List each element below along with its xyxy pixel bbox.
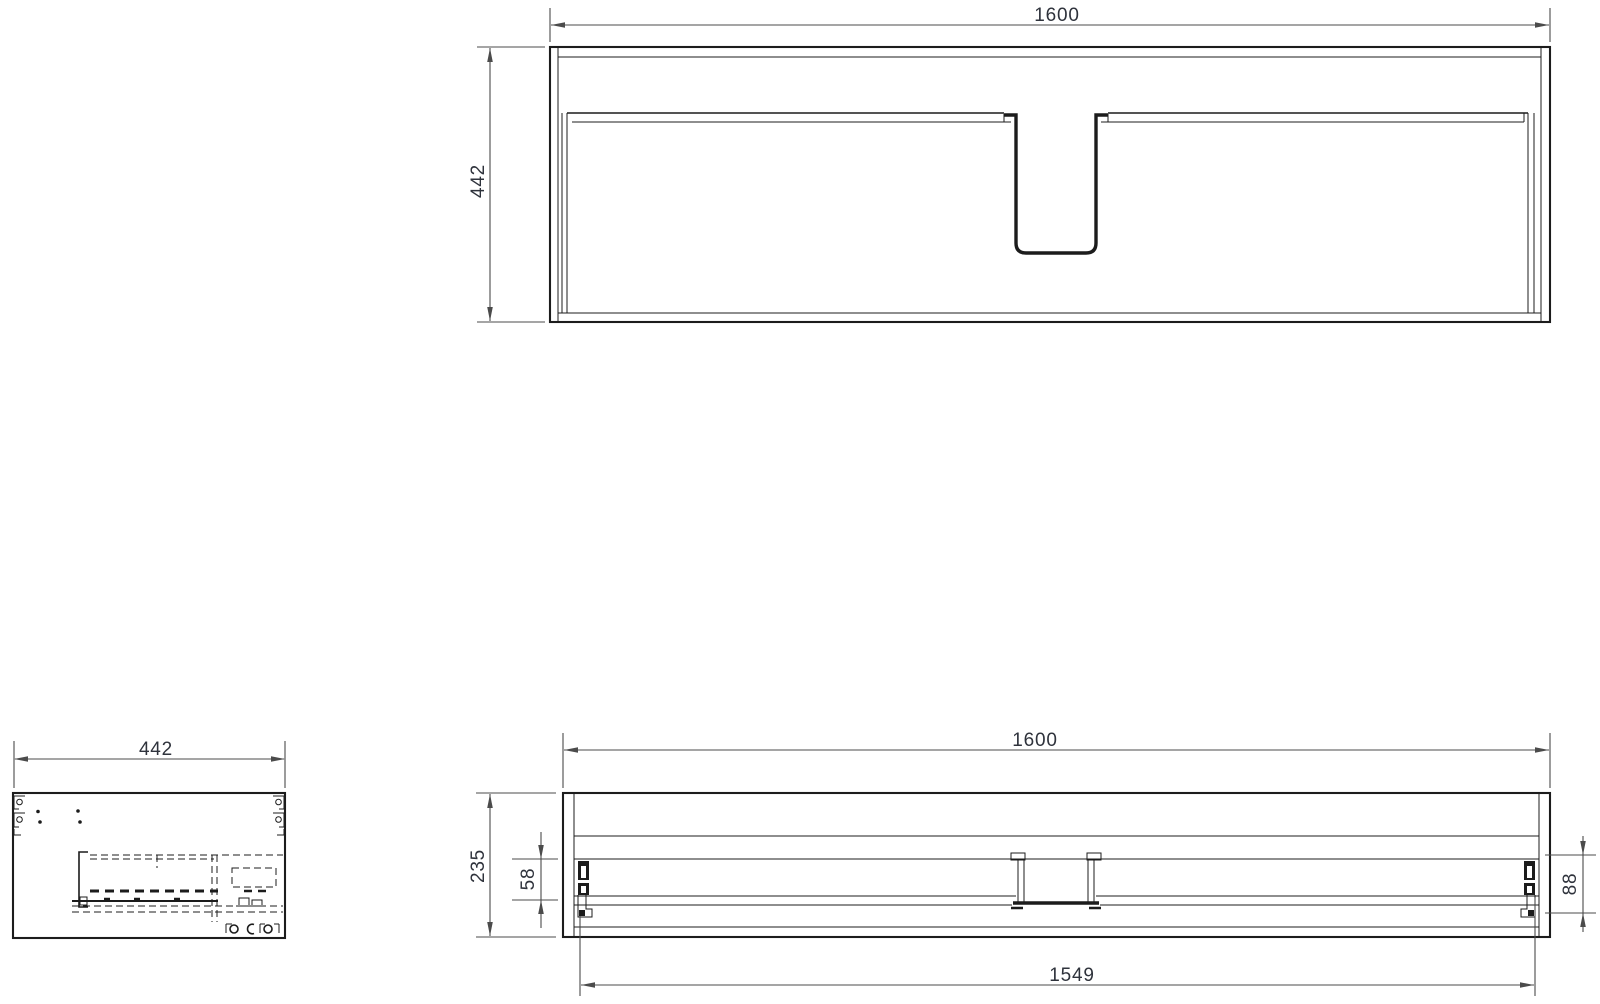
side-view-right-hanger-bracket	[273, 796, 284, 835]
technical-drawing-canvas: 1600 442	[0, 0, 1600, 1004]
front-view	[563, 793, 1550, 937]
arrowhead-bottom	[487, 922, 493, 936]
arrowhead-right	[1535, 22, 1549, 28]
front-view-width-dimension: 1600	[563, 730, 1550, 788]
top-view-width-label: 1600	[1034, 5, 1079, 26]
side-view-rail-steps	[236, 898, 266, 906]
side-view-depth-label: 442	[139, 739, 173, 760]
front-view-width-label: 1600	[1012, 730, 1057, 751]
front-view-slide-bracket-label: 88	[1560, 873, 1581, 896]
arrowhead-right	[1535, 747, 1549, 753]
arrowhead-top	[487, 48, 493, 62]
front-view-height-dimension: 235	[468, 793, 556, 937]
arrowhead-right	[271, 756, 285, 762]
arrowhead-bottom	[538, 900, 544, 914]
side-view-left-hanger-bracket	[14, 796, 25, 835]
side-view-slide-rail	[72, 891, 283, 912]
side-view	[13, 793, 285, 938]
arrowhead-right	[1520, 982, 1534, 988]
side-view-drill-marks	[36, 809, 82, 824]
top-view-drawer-left-wall	[562, 113, 567, 313]
front-view-carcass-outline	[563, 793, 1550, 937]
channel-walls	[1018, 860, 1094, 902]
top-view-width-dimension: 1600	[550, 5, 1550, 42]
top-view-drawer-right-wall	[1528, 113, 1534, 313]
side-view-rear-hidden-box	[232, 868, 276, 887]
front-view-right-slide-clip	[1521, 861, 1535, 917]
arrowhead-left	[564, 747, 578, 753]
top-view	[550, 47, 1550, 322]
top-view-edge-connectors	[567, 113, 1524, 122]
arrowhead-top	[1580, 841, 1586, 855]
top-view-depth-dimension: 442	[468, 47, 545, 322]
front-view-inner-width-dimension: 1549	[580, 898, 1535, 996]
front-view-inner-width-label: 1549	[1049, 965, 1094, 986]
top-view-depth-label: 442	[468, 164, 489, 198]
side-view-outline	[13, 793, 285, 938]
front-view-drawer-offset-dimension: 58	[512, 832, 558, 928]
front-view-slide-bracket-dimension: 88	[1545, 836, 1596, 932]
top-view-carcass-outline	[550, 47, 1550, 322]
front-view-left-slide-clip	[578, 861, 592, 917]
side-view-roller-hardware	[226, 924, 279, 934]
front-view-drawer-offset-label: 58	[518, 868, 539, 891]
front-view-waste-channel	[1011, 853, 1101, 908]
cad-drawing: 1600 442	[0, 0, 1600, 1004]
side-view-clip-c	[248, 924, 254, 934]
arrowhead-left	[551, 22, 565, 28]
side-view-depth-dimension: 442	[14, 739, 285, 788]
top-view-sink-waste-cutout	[1004, 115, 1108, 253]
arrowhead-left	[14, 756, 28, 762]
arrowhead-top	[487, 794, 493, 808]
arrowhead-bottom	[1580, 913, 1586, 927]
arrowhead-left	[581, 982, 595, 988]
arrowhead-bottom	[487, 307, 493, 321]
front-view-height-label: 235	[468, 849, 489, 883]
arrowhead-top	[538, 845, 544, 859]
